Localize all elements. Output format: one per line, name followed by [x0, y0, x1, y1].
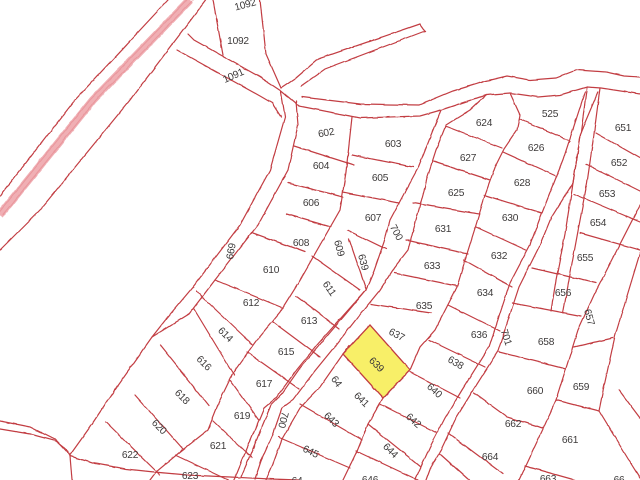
svg-text:658: 658: [538, 337, 555, 348]
svg-text:661: 661: [562, 435, 579, 446]
svg-text:1092: 1092: [227, 36, 249, 47]
svg-text:607: 607: [365, 213, 382, 224]
svg-text:613: 613: [301, 316, 318, 327]
svg-text:662: 662: [505, 419, 522, 430]
svg-text:64: 64: [292, 476, 303, 480]
svg-text:636: 636: [471, 330, 488, 341]
svg-text:610: 610: [263, 265, 280, 276]
svg-text:664: 664: [482, 452, 499, 463]
svg-text:606: 606: [303, 198, 320, 209]
svg-text:660: 660: [527, 386, 544, 397]
svg-text:624: 624: [476, 118, 493, 129]
svg-text:630: 630: [502, 213, 519, 224]
svg-text:628: 628: [514, 178, 531, 189]
svg-text:634: 634: [477, 288, 494, 299]
svg-text:656: 656: [555, 288, 572, 299]
svg-text:621: 621: [210, 441, 227, 452]
svg-text:659: 659: [573, 382, 590, 393]
svg-text:66: 66: [614, 475, 625, 480]
svg-text:603: 603: [385, 139, 402, 150]
svg-text:653: 653: [599, 189, 616, 200]
svg-text:663: 663: [540, 474, 557, 480]
svg-text:608: 608: [293, 238, 310, 249]
svg-text:654: 654: [590, 218, 607, 229]
svg-text:635: 635: [416, 301, 433, 312]
svg-text:652: 652: [611, 158, 628, 169]
svg-text:655: 655: [577, 253, 594, 264]
svg-text:604: 604: [313, 161, 330, 172]
svg-text:651: 651: [615, 123, 632, 134]
svg-text:617: 617: [256, 379, 273, 390]
svg-text:623: 623: [182, 471, 199, 480]
svg-text:646: 646: [362, 475, 379, 480]
svg-text:605: 605: [372, 173, 389, 184]
svg-text:631: 631: [435, 224, 452, 235]
svg-text:633: 633: [424, 261, 441, 272]
svg-text:615: 615: [278, 347, 295, 358]
svg-text:525: 525: [542, 109, 559, 120]
svg-text:612: 612: [243, 298, 260, 309]
svg-text:622: 622: [122, 450, 139, 461]
svg-text:619: 619: [234, 411, 251, 422]
svg-text:627: 627: [460, 153, 477, 164]
svg-text:626: 626: [528, 143, 545, 154]
svg-text:632: 632: [491, 251, 508, 262]
svg-text:625: 625: [448, 188, 465, 199]
